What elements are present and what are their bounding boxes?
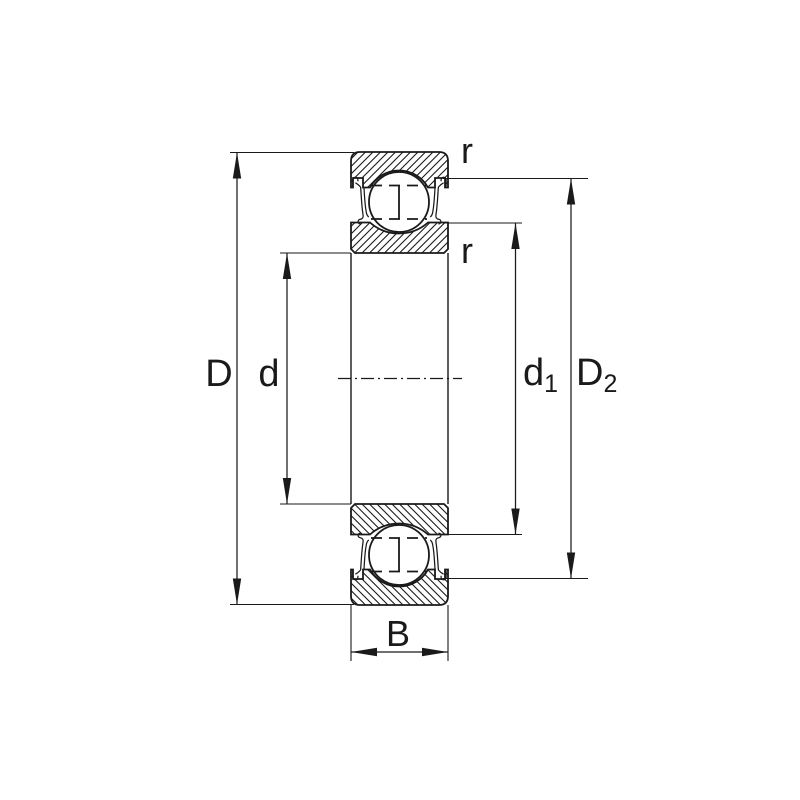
label-outer-diameter-D: D — [205, 353, 232, 395]
diagram-canvas: D d d1 D2 B r r — [0, 0, 800, 800]
bearing-section-bottom — [351, 504, 448, 605]
dimension-D2 — [567, 179, 575, 579]
bearing-section-top — [351, 152, 448, 253]
label-D2: D2 — [576, 352, 617, 398]
label-radius-outer-r: r — [461, 130, 473, 171]
bearing-dimension-diagram: D d d1 D2 B r r — [0, 0, 800, 800]
dimension-d1 — [511, 223, 519, 535]
label-width-B: B — [386, 613, 410, 654]
label-bore-d: d — [258, 353, 279, 395]
dimension-d — [283, 253, 291, 504]
label-radius-inner-r: r — [461, 230, 473, 271]
dimension-D — [233, 153, 241, 605]
label-d1: d1 — [523, 352, 558, 398]
